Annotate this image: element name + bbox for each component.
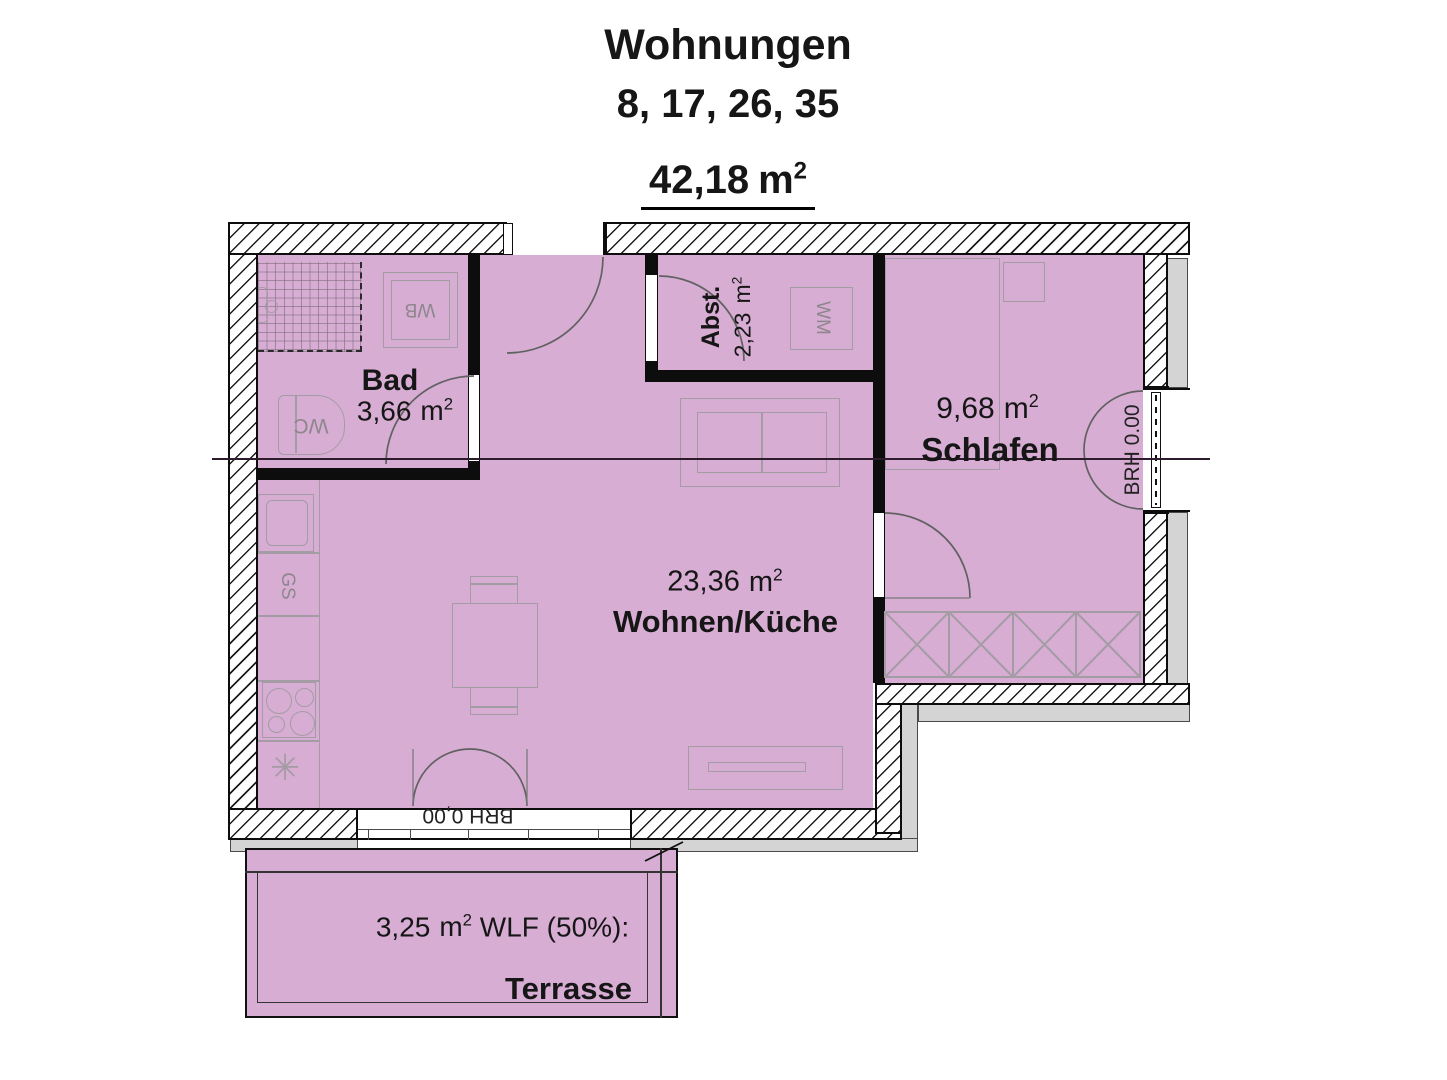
brh-window-annotation: BRH 0.00 [1068, 385, 1198, 515]
terrace-door-arc-left [413, 749, 470, 806]
bad-area: 3,66m2 [330, 396, 480, 427]
bad-label: Bad [330, 364, 450, 397]
abst-label-group: Abst. 2,23m2 [662, 252, 792, 382]
terrace-door-leaf-lines [413, 749, 527, 806]
entrance-door-arc [507, 257, 603, 353]
schlafen-door-arc [885, 513, 970, 598]
floor-plan-page: Wohnungen 8, 17, 26, 35 42,18m2 ✳ [0, 0, 1447, 1080]
terrasse-label: Terrasse [402, 972, 632, 1006]
wohnen-label: Wohnen/Küche [588, 605, 863, 639]
washbasin-label: WB [393, 291, 447, 327]
toilet-label: WC [283, 407, 339, 443]
schlafen-area: 9,68m2 [885, 392, 1090, 425]
brh-door-annotation: BRH 0,00 [408, 800, 528, 830]
abst-label: Abst. [698, 286, 726, 349]
wohnen-area: 23,36m2 [600, 565, 850, 599]
plan-linework [0, 0, 1447, 1080]
abst-area: 2,23m2 [730, 277, 756, 358]
wardrobe [885, 612, 1140, 677]
terrasse-area: 3,25m2 WLF (50%): [330, 912, 675, 943]
washing-machine-label: WM [794, 290, 850, 346]
dishwasher-label: GS [259, 558, 315, 614]
schlafen-label: Schlafen [885, 432, 1095, 468]
terrace-door-arc-right [470, 749, 527, 806]
terrace-break-mark [645, 842, 683, 861]
